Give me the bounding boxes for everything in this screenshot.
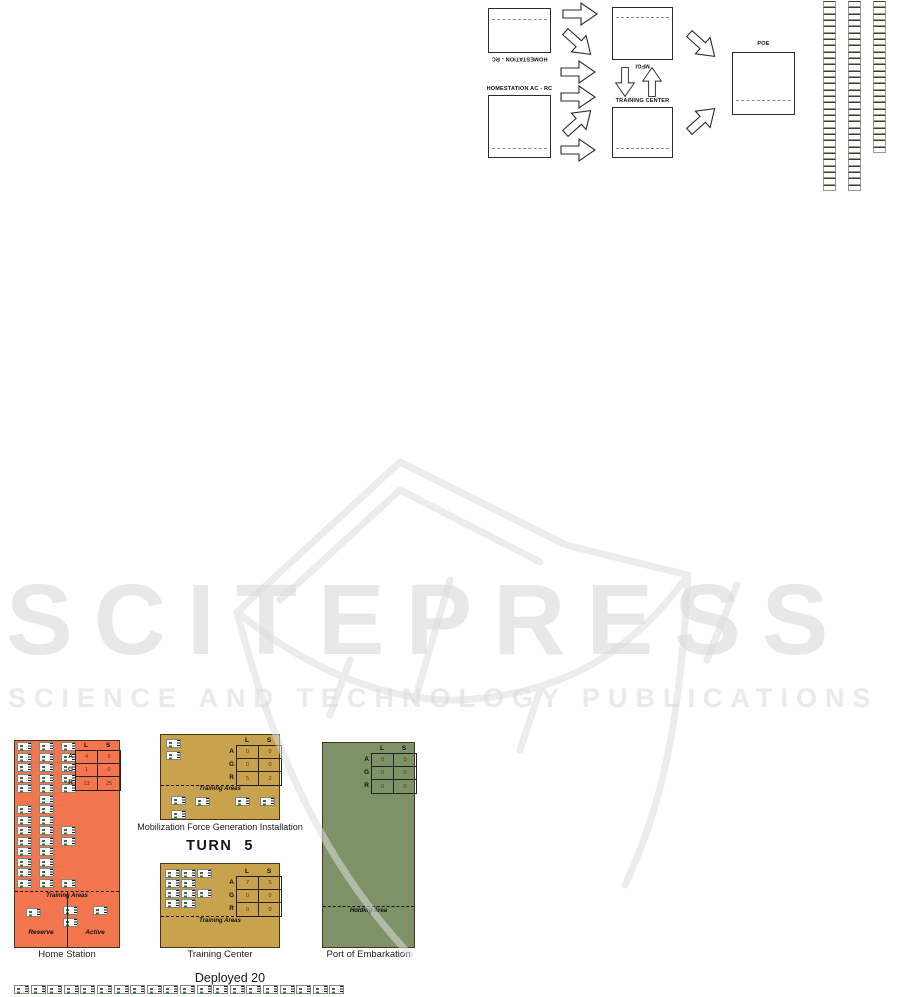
unit-counter bbox=[17, 868, 32, 877]
table-col-header: S bbox=[258, 868, 280, 876]
unit-counter bbox=[61, 879, 76, 888]
unit-counter bbox=[197, 889, 212, 898]
deployed-units-strip bbox=[14, 985, 346, 995]
arrow-down-right-icon bbox=[558, 23, 598, 62]
deployed-unit-counter bbox=[246, 985, 261, 994]
table-row-header: A bbox=[224, 876, 236, 889]
arrow-up-icon bbox=[643, 68, 662, 97]
poe-caption: Port of Embarkation bbox=[322, 949, 415, 960]
box-dashed-line bbox=[616, 17, 669, 18]
table-row-header: A bbox=[63, 750, 75, 763]
unit-counter bbox=[195, 797, 210, 806]
unit-counter bbox=[39, 858, 54, 867]
table-col-header: S bbox=[258, 737, 280, 745]
deployed-unit-counter bbox=[64, 985, 79, 994]
unit-counter bbox=[39, 826, 54, 835]
deployed-unit-counter bbox=[130, 985, 145, 994]
deployed-unit-counter bbox=[296, 985, 311, 994]
mfgi-panel: L S A G R 0 0 0 0 5 2 Training bbox=[160, 734, 280, 820]
unit-counter bbox=[17, 753, 32, 762]
arrow-right-icon bbox=[561, 86, 595, 108]
deployment-flow-diagram: HOMESTATION - RC HOMESTATION AC - RC MFG… bbox=[480, 0, 901, 200]
training-center-caption: Training Center bbox=[160, 949, 280, 960]
table-cell: 13 bbox=[76, 777, 98, 790]
table-row-header: R bbox=[359, 779, 371, 792]
table-cell: 0 bbox=[237, 746, 259, 759]
unit-counter bbox=[63, 906, 78, 915]
deployed-unit-counter bbox=[47, 985, 62, 994]
unit-counter bbox=[165, 869, 180, 878]
box-dashed-line bbox=[736, 100, 791, 101]
unit-counter bbox=[26, 908, 41, 917]
scitepress-watermark-subtitle: SCIENCE AND TECHNOLOGY PUBLICATIONS bbox=[8, 683, 879, 714]
table-cell: 0 bbox=[259, 746, 281, 759]
table-cell: 0 bbox=[372, 780, 394, 793]
training-areas-divider bbox=[161, 916, 279, 917]
unit-counter bbox=[39, 805, 54, 814]
turn-label: TURN bbox=[186, 838, 232, 854]
deployed-unit-counter bbox=[14, 985, 29, 994]
table-cell: 5 bbox=[259, 877, 281, 890]
unit-counter bbox=[165, 879, 180, 888]
deployed-unit-counter bbox=[329, 985, 344, 994]
unit-counter bbox=[171, 796, 186, 805]
holding-area-divider bbox=[323, 906, 414, 907]
homestation-ac-rc-label: HOMESTATION AC - RC bbox=[482, 87, 557, 93]
unit-counter bbox=[165, 899, 180, 908]
arrow-up-right-icon bbox=[558, 102, 598, 141]
table-row-header: G bbox=[224, 758, 236, 771]
table-col-header: S bbox=[393, 745, 415, 753]
box-dashed-line bbox=[492, 148, 547, 149]
unit-counter bbox=[39, 784, 54, 793]
table-col-header: L bbox=[371, 745, 393, 753]
paper-page: SCITEPRESS SCIENCE AND TECHNOLOGY PUBLIC… bbox=[0, 0, 901, 997]
table-col-header: L bbox=[75, 742, 97, 750]
table-cell: 2 bbox=[259, 772, 281, 785]
home-station-lstable: L S A G R 4 9 1 0 13 25 bbox=[63, 742, 121, 791]
deployed-unit-counter bbox=[97, 985, 112, 994]
unit-track-ladder bbox=[873, 1, 886, 153]
unit-counter bbox=[17, 847, 32, 856]
table-col-header: S bbox=[97, 742, 119, 750]
table-cell: 5 bbox=[237, 772, 259, 785]
table-cell: 0 bbox=[394, 754, 416, 767]
arrow-right-icon bbox=[561, 61, 595, 83]
unit-counter bbox=[165, 889, 180, 898]
table-cell: 4 bbox=[76, 751, 98, 764]
home-station-caption: Home Station bbox=[14, 949, 120, 960]
unit-counter bbox=[39, 868, 54, 877]
unit-counter bbox=[39, 774, 54, 783]
unit-counter bbox=[181, 869, 196, 878]
unit-track-ladder bbox=[823, 1, 836, 191]
table-row-header: R bbox=[63, 776, 75, 789]
training-areas-label: Training Areas bbox=[161, 786, 279, 792]
unit-counter bbox=[17, 826, 32, 835]
mfgi-caption: Mobilization Force Generation Installati… bbox=[110, 822, 330, 832]
table-row-header: A bbox=[359, 753, 371, 766]
unit-counter bbox=[17, 816, 32, 825]
table-cell: 0 bbox=[372, 754, 394, 767]
deployed-unit-counter bbox=[147, 985, 162, 994]
table-row-header: G bbox=[224, 889, 236, 902]
training-center-lstable: L S A G R 7 5 0 0 0 0 bbox=[224, 868, 282, 917]
holding-area-label: Holding Area bbox=[323, 908, 414, 914]
poe-lstable: L S A G R 0 0 0 0 0 0 bbox=[359, 745, 417, 794]
unit-counter bbox=[17, 742, 32, 751]
unit-counter bbox=[17, 805, 32, 814]
home-station-panel: L S A G R 4 9 1 0 13 25 Trainin bbox=[14, 740, 120, 948]
table-cell: 0 bbox=[394, 767, 416, 780]
ladder-cell bbox=[823, 185, 836, 191]
arrow-down-right-icon bbox=[682, 25, 722, 64]
training-center-box bbox=[612, 107, 673, 158]
poe-box bbox=[732, 52, 795, 115]
unit-counter bbox=[93, 906, 108, 915]
deployed-unit-counter bbox=[280, 985, 295, 994]
table-cell: 0 bbox=[237, 759, 259, 772]
table-cell: 0 bbox=[259, 759, 281, 772]
unit-counter bbox=[17, 858, 32, 867]
deployed-unit-counter bbox=[180, 985, 195, 994]
unit-counter bbox=[39, 795, 54, 804]
table-row-header: A bbox=[224, 745, 236, 758]
unit-counter bbox=[17, 879, 32, 888]
table-cell: 1 bbox=[76, 764, 98, 777]
box-dashed-line bbox=[616, 148, 669, 149]
table-cell: 0 bbox=[394, 780, 416, 793]
deployed-unit-counter bbox=[197, 985, 212, 994]
unit-track-ladder bbox=[848, 1, 861, 191]
table-cell: 25 bbox=[98, 777, 120, 790]
unit-counter bbox=[197, 869, 212, 878]
table-row-header: R bbox=[224, 771, 236, 784]
active-label: Active bbox=[73, 929, 117, 936]
unit-counter bbox=[61, 837, 76, 846]
unit-counter bbox=[171, 810, 186, 819]
deployed-unit-counter bbox=[80, 985, 95, 994]
reserve-active-divider bbox=[67, 891, 68, 948]
arrow-down-icon bbox=[616, 68, 635, 97]
ladder-cell bbox=[873, 147, 886, 153]
table-row-header: R bbox=[224, 902, 236, 915]
unit-counter bbox=[181, 899, 196, 908]
deployed-unit-counter bbox=[263, 985, 278, 994]
unit-counter bbox=[63, 918, 78, 927]
table-row-header: G bbox=[359, 766, 371, 779]
unit-counter bbox=[39, 837, 54, 846]
deployed-unit-counter bbox=[230, 985, 245, 994]
box-dashed-line bbox=[492, 19, 547, 20]
unit-counter bbox=[166, 739, 181, 748]
poe-label: POE bbox=[732, 42, 795, 48]
unit-counter bbox=[166, 751, 181, 760]
table-cell: 0 bbox=[237, 903, 259, 916]
table-cell: 0 bbox=[259, 903, 281, 916]
deployed-unit-counter bbox=[163, 985, 178, 994]
table-cell: 0 bbox=[237, 890, 259, 903]
scitepress-watermark-title: SCITEPRESS bbox=[6, 570, 850, 670]
table-cell: 0 bbox=[98, 764, 120, 777]
training-center-label: TRAINING CENTER bbox=[612, 99, 673, 105]
unit-counter bbox=[17, 763, 32, 772]
unit-counter bbox=[235, 797, 250, 806]
publisher-book-logo bbox=[210, 450, 750, 980]
table-cell: 7 bbox=[237, 877, 259, 890]
training-center-panel: L S A G R 7 5 0 0 0 0 Training bbox=[160, 863, 280, 948]
unit-counter bbox=[39, 753, 54, 762]
arrow-up-right-icon bbox=[682, 100, 722, 139]
homestation-ac-rc-box bbox=[488, 95, 551, 158]
unit-counter bbox=[39, 816, 54, 825]
turn-value: 5 bbox=[244, 838, 254, 854]
deployed-unit-counter bbox=[31, 985, 46, 994]
training-areas-label: Training Areas bbox=[161, 918, 279, 924]
unit-counter bbox=[39, 879, 54, 888]
unit-counter bbox=[39, 763, 54, 772]
mfgi-lstable: L S A G R 0 0 0 0 5 2 bbox=[224, 737, 282, 786]
arrow-right-icon bbox=[563, 3, 597, 25]
unit-counter bbox=[61, 826, 76, 835]
unit-counter bbox=[17, 774, 32, 783]
table-col-header: L bbox=[236, 868, 258, 876]
table-cell: 0 bbox=[259, 890, 281, 903]
homestation-rc-box bbox=[488, 8, 551, 53]
unit-counter bbox=[181, 879, 196, 888]
arrow-right-icon bbox=[561, 139, 595, 161]
mfgi-box bbox=[612, 7, 673, 60]
unit-counter bbox=[260, 797, 275, 806]
deployed-unit-counter bbox=[114, 985, 129, 994]
table-cell: 9 bbox=[98, 751, 120, 764]
poe-panel: L S A G R 0 0 0 0 0 0 Holding A bbox=[322, 742, 415, 948]
unit-counter bbox=[17, 784, 32, 793]
unit-counter bbox=[181, 889, 196, 898]
deployed-label: Deployed 20 bbox=[130, 971, 330, 985]
homestation-rc-label: HOMESTATION - RC bbox=[488, 55, 551, 61]
ladder-cell bbox=[848, 185, 861, 191]
unit-counter bbox=[39, 742, 54, 751]
unit-counter bbox=[39, 847, 54, 856]
table-row-header: G bbox=[63, 763, 75, 776]
turn-indicator: TURN5 bbox=[150, 838, 290, 854]
mfgi-label: MFGI bbox=[612, 62, 673, 68]
unit-counter bbox=[17, 837, 32, 846]
reserve-label: Reserve bbox=[19, 929, 63, 936]
table-col-header: L bbox=[236, 737, 258, 745]
table-cell: 0 bbox=[372, 767, 394, 780]
deployed-unit-counter bbox=[213, 985, 228, 994]
deployed-unit-counter bbox=[313, 985, 328, 994]
